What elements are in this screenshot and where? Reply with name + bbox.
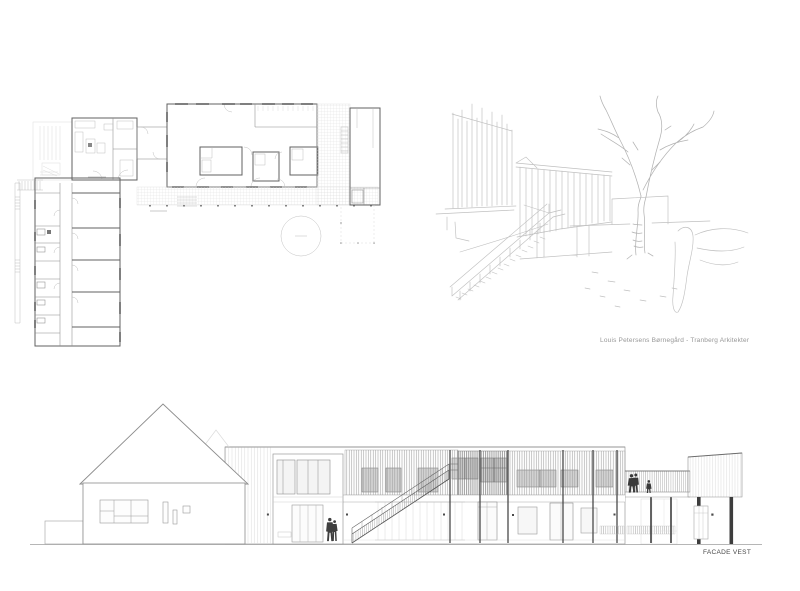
house-band-window — [100, 500, 148, 523]
facade-walkway — [625, 471, 690, 497]
slat-screen — [345, 450, 458, 495]
facade-label: FACADE VEST — [703, 549, 751, 556]
sketch-background-wall — [460, 196, 710, 252]
glass-door — [478, 502, 497, 540]
entry-door — [292, 505, 323, 542]
sketch-building — [516, 157, 612, 259]
facade-gabled-house — [45, 404, 248, 544]
walkway-columns — [651, 497, 671, 543]
facade-main-building — [225, 447, 677, 544]
facade-elevation-drawing — [30, 404, 762, 545]
facade-elevated-block — [688, 453, 742, 544]
sketch-foreground-scribbles — [585, 227, 748, 312]
presentation-sheet: Louis Petersens Børnegård - Tranberg Ark… — [0, 0, 800, 591]
sketch-fence — [436, 104, 516, 241]
perspective-sketch-drawing — [436, 96, 748, 312]
glass-door — [550, 503, 573, 540]
floor-plan-drawing — [15, 104, 380, 346]
house-roof — [80, 404, 248, 484]
sketch-stair — [450, 204, 565, 300]
drawings-canvas — [0, 0, 800, 591]
credit-caption: Louis Petersens Børnegård - Tranberg Ark… — [600, 337, 748, 344]
slat-screen — [507, 451, 625, 495]
slat-screen-dense — [458, 451, 507, 495]
